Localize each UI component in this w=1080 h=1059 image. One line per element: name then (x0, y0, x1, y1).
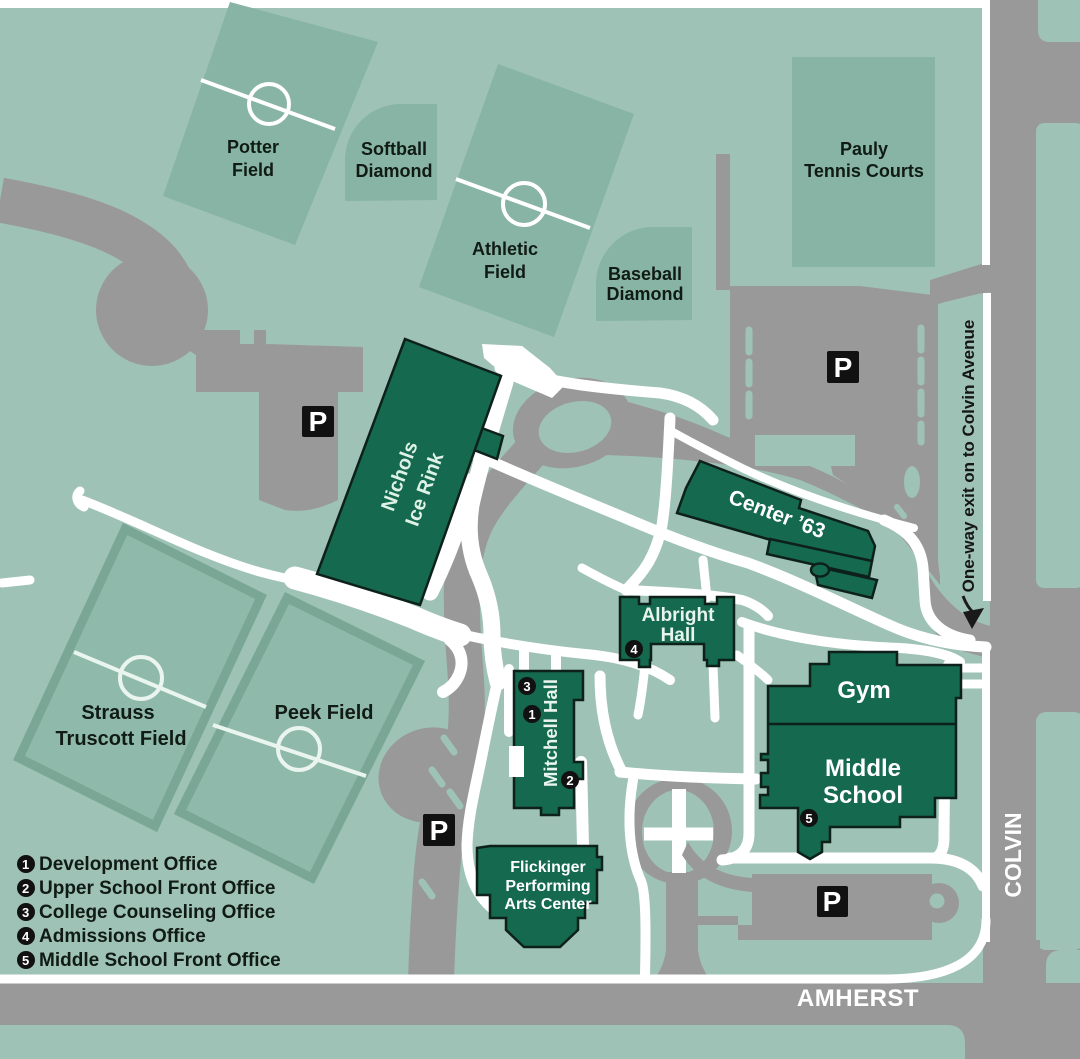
svg-text:Diamond: Diamond (606, 284, 683, 304)
svg-text:College Counseling Office: College Counseling Office (39, 902, 275, 923)
svg-text:P: P (309, 406, 328, 437)
svg-text:Middle: Middle (825, 755, 901, 782)
svg-text:Potter: Potter (227, 137, 279, 157)
svg-text:Softball: Softball (361, 139, 427, 159)
svg-text:Flickinger: Flickinger (510, 859, 586, 876)
svg-text:COLVIN: COLVIN (1000, 812, 1026, 897)
svg-text:Field: Field (484, 262, 526, 282)
svg-text:Tennis Courts: Tennis Courts (804, 161, 924, 181)
svg-text:Diamond: Diamond (355, 161, 432, 181)
svg-text:4: 4 (630, 642, 638, 657)
svg-text:Upper School Front Office: Upper School Front Office (39, 878, 275, 899)
svg-text:2: 2 (566, 773, 573, 788)
svg-text:Arts Center: Arts Center (504, 896, 591, 913)
svg-text:2: 2 (22, 881, 29, 896)
svg-text:Field: Field (232, 160, 274, 180)
svg-text:Pauly: Pauly (840, 139, 888, 159)
svg-text:AMHERST: AMHERST (797, 985, 919, 1012)
svg-text:Gym: Gym (837, 677, 890, 704)
svg-text:3: 3 (523, 679, 530, 694)
svg-text:Middle School Front Office: Middle School Front Office (39, 950, 281, 971)
svg-text:P: P (823, 886, 842, 917)
svg-text:Strauss: Strauss (81, 702, 154, 724)
svg-text:Baseball: Baseball (608, 264, 682, 284)
svg-text:One-way exit on to Colvin Aven: One-way exit on to Colvin Avenue (959, 320, 978, 593)
svg-text:4: 4 (22, 929, 30, 944)
svg-text:School: School (823, 782, 903, 809)
svg-text:P: P (834, 352, 853, 383)
svg-text:P: P (430, 815, 449, 846)
svg-text:Mitchell Hall: Mitchell Hall (540, 679, 561, 787)
svg-text:5: 5 (805, 811, 812, 826)
svg-text:3: 3 (22, 905, 29, 920)
svg-text:Albright: Albright (642, 605, 715, 626)
svg-text:Peek Field: Peek Field (275, 702, 374, 724)
svg-text:1: 1 (22, 857, 29, 872)
svg-text:5: 5 (22, 953, 29, 968)
svg-text:Admissions Office: Admissions Office (39, 926, 206, 947)
svg-text:Truscott Field: Truscott Field (55, 728, 186, 750)
svg-text:Development Office: Development Office (39, 854, 217, 875)
svg-text:Hall: Hall (661, 625, 696, 646)
svg-text:Performing: Performing (505, 878, 590, 895)
svg-text:Athletic: Athletic (472, 239, 538, 259)
svg-text:1: 1 (528, 707, 535, 722)
